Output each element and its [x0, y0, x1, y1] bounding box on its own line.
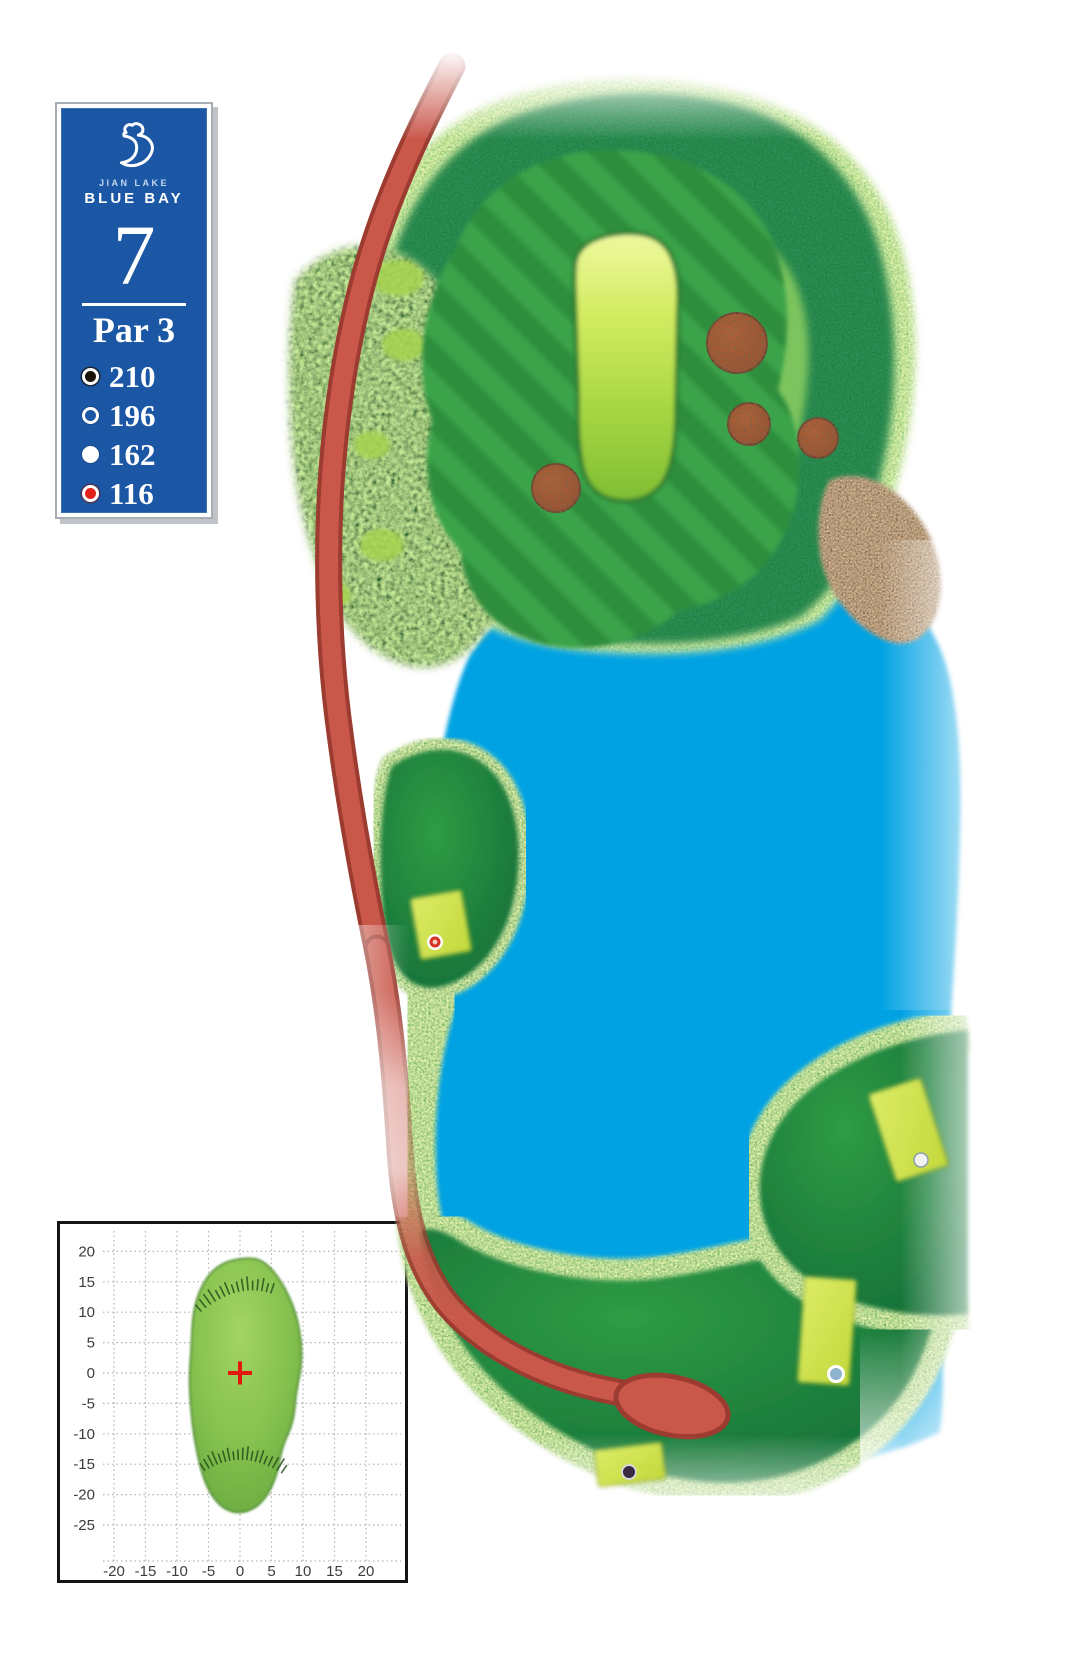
cart-path-turnaround — [610, 1366, 734, 1446]
svg-text:5: 5 — [87, 1335, 95, 1352]
tee-distance: 210 — [109, 359, 156, 395]
fairway-apron-striped — [422, 150, 799, 648]
tee-row-black: 210 — [82, 357, 186, 396]
lake — [421, 557, 960, 1469]
svg-text:-20: -20 — [103, 1563, 125, 1580]
tee-box-outline-196 — [797, 1276, 856, 1385]
svg-text:-10: -10 — [166, 1563, 188, 1580]
svg-text:20: 20 — [358, 1563, 375, 1580]
bunker — [707, 313, 767, 373]
trees — [289, 246, 506, 668]
tree-highlights — [319, 260, 426, 607]
bunker — [532, 464, 580, 512]
tee-boxes — [410, 890, 949, 1487]
tee-box-red-116 — [410, 890, 472, 960]
tee-marker-white — [914, 1153, 928, 1167]
dark-rough — [378, 93, 894, 644]
left-shore-rough — [410, 995, 452, 1302]
svg-text:5: 5 — [267, 1563, 275, 1580]
svg-text:10: 10 — [78, 1304, 95, 1321]
tee-distance: 196 — [109, 398, 156, 434]
green-detail-chart: 20151050-5-10-15-20-25-20-15-10-50510152… — [57, 1221, 408, 1583]
svg-text:-15: -15 — [135, 1563, 157, 1580]
svg-text:15: 15 — [326, 1563, 343, 1580]
tee-distance-legend: 210 196 162 116 — [82, 357, 186, 513]
club-name: BLUE BAY — [84, 190, 183, 207]
hole-info-panel: JIAN LAKE BLUE BAY 7 Par 3 210 196 162 — [61, 108, 207, 513]
sand-beach — [818, 476, 940, 644]
tee-marker-red — [427, 934, 443, 950]
svg-text:-5: -5 — [202, 1563, 215, 1580]
svg-text:15: 15 — [78, 1274, 95, 1291]
tee-box-white-162 — [868, 1078, 949, 1182]
peninsula — [760, 1030, 968, 1315]
blue-bay-logo-icon — [101, 120, 167, 172]
tee-row-white: 162 — [82, 435, 186, 474]
svg-text:-5: -5 — [82, 1395, 95, 1412]
tee-distance: 116 — [109, 476, 154, 512]
tee-marker-hollow — [829, 1367, 844, 1382]
divider — [82, 303, 186, 306]
hole-number: 7 — [113, 215, 156, 297]
svg-text:10: 10 — [295, 1563, 312, 1580]
tee-box-black-210 — [594, 1442, 666, 1487]
tee-row-red: 116 — [82, 474, 186, 513]
red-tee-knob — [380, 750, 518, 988]
tee-markers — [427, 934, 928, 1479]
bunker — [798, 418, 838, 458]
yardage-book-page: 20151050-5-10-15-20-25-20-15-10-50510152… — [0, 0, 1080, 1676]
svg-text:0: 0 — [236, 1563, 244, 1580]
svg-text:-25: -25 — [73, 1517, 95, 1534]
collar-light — [742, 240, 809, 528]
tee-marker-black — [622, 1465, 636, 1479]
black-tee-marker-icon — [82, 368, 99, 385]
light-rough — [359, 78, 915, 654]
svg-text:20: 20 — [78, 1243, 95, 1260]
bunkers — [532, 313, 838, 512]
white-tee-marker-icon — [82, 446, 99, 463]
par-label: Par 3 — [93, 309, 175, 351]
bottom-land — [420, 1229, 940, 1483]
red-tee-marker-icon — [82, 485, 99, 502]
tee-distance: 162 — [109, 437, 156, 473]
club-name-small: JIAN LAKE — [99, 178, 169, 188]
svg-text:-20: -20 — [73, 1487, 95, 1504]
green-complex — [289, 78, 941, 667]
svg-text:-10: -10 — [73, 1426, 95, 1443]
bunker — [728, 403, 770, 445]
tee-row-hollow: 196 — [82, 396, 186, 435]
svg-text:0: 0 — [87, 1365, 95, 1382]
hole-info-card: JIAN LAKE BLUE BAY 7 Par 3 210 196 162 — [55, 102, 213, 519]
svg-text:-15: -15 — [73, 1456, 95, 1473]
green-detail-svg: 20151050-5-10-15-20-25-20-15-10-50510152… — [57, 1221, 408, 1583]
hollow-tee-marker-icon — [82, 407, 99, 424]
putting-green — [575, 233, 679, 501]
